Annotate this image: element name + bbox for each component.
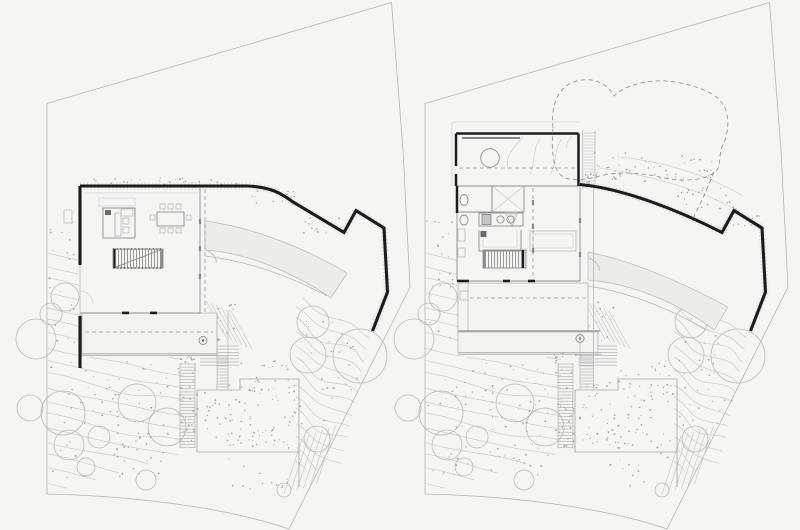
- deck: [82, 313, 217, 356]
- terrace: [458, 283, 600, 331]
- floor-plan-canvas: [0, 0, 800, 530]
- drawing-area: [0, 0, 800, 530]
- deck: [458, 332, 602, 355]
